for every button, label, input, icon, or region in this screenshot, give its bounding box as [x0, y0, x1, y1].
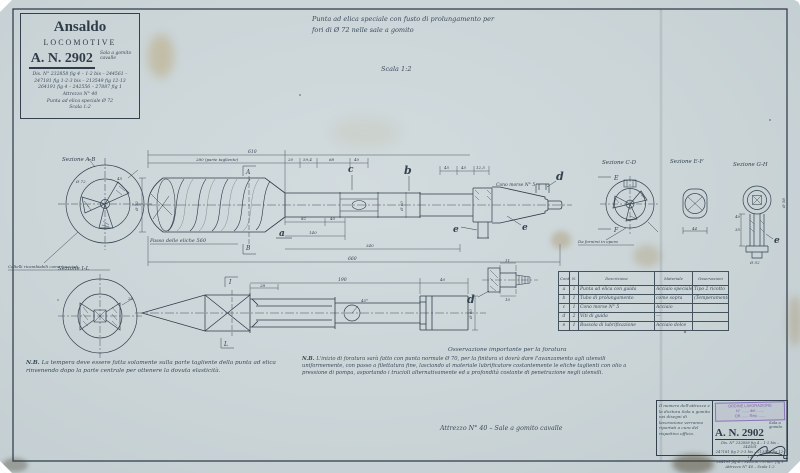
part-a-label: a	[279, 229, 285, 239]
dim-610: 610	[248, 149, 257, 155]
sheet-title-line2: fori di Ø 72 nelle sale a gomito	[312, 25, 582, 36]
guide-screw-detail	[478, 263, 538, 297]
dim-40a: 40	[353, 157, 360, 162]
section-cd-view	[600, 176, 660, 240]
section-il-label: Sezione I-L	[58, 266, 90, 272]
extension-rod	[135, 277, 486, 348]
table-row: b1 Tubo di prolungamentocome sopra(Tempe…	[559, 295, 729, 304]
section-ab-label: Sezione A-B	[62, 157, 95, 163]
blueprint-sheet: Sezione A-B 45 Ø 72	[0, 0, 800, 473]
part-e-label-2: e	[522, 223, 528, 233]
marker-a-cap: A	[245, 169, 251, 176]
part-e-label-1: e	[453, 225, 459, 235]
dim-660: 660	[348, 256, 357, 262]
title-block-refs: Dis. N° 232858 fig 4 – 1-2 bis – 244561 …	[715, 441, 785, 470]
dim-ef-44: 44	[691, 226, 698, 231]
drilling-note: N.B.L'inizio di foratura sarà fatto con …	[302, 356, 628, 376]
dim-screw-11: 11	[505, 258, 510, 263]
title-block-note: Il numero dell'attrezzo e la dicitura Sa…	[657, 401, 713, 455]
dim-rod-40: 40	[439, 277, 446, 282]
supply-note: Da fornirsi in opera	[577, 239, 618, 244]
table-row: e1 Bussola di lubrificazioneAcciaio dolc…	[559, 322, 729, 331]
dim-82: 82	[301, 216, 307, 221]
dim-40b: 40	[329, 216, 336, 221]
col-qty: N.	[570, 272, 579, 286]
section-cd-label: Sezione C-D	[602, 160, 637, 166]
tempering-note: N.B.La tempera deve essere fatta solamen…	[26, 360, 292, 375]
title-box-top-left: Ansaldo LOCOMOTIVE A. N. 2902 Sala a gom…	[20, 13, 140, 119]
dim-screw-10: 10	[505, 297, 511, 302]
part-d-label-2: d	[467, 293, 475, 306]
section-gh-view	[739, 186, 773, 258]
dim-dia60: Ø 60	[399, 201, 404, 212]
dim-594: 59,4	[303, 157, 312, 162]
work-order-stamp: ORDINE LAVORAZIONE N° ....... del ......…	[715, 401, 785, 421]
section-gh-label: Sezione G-H	[733, 162, 768, 168]
drawing-number-annotation: Sala a gomito cavalle	[100, 52, 131, 62]
marker-e-cap: E	[613, 175, 619, 182]
paper-corner	[788, 461, 800, 473]
dim-rod-28: 28	[259, 283, 266, 288]
dim-rod-45deg: 45°	[360, 298, 368, 303]
dim-68: 68	[329, 157, 335, 162]
tool-reference-line: Attrezzo N° 40 – Sale a gomito cavalle	[440, 425, 563, 432]
section-il-view	[58, 274, 142, 358]
dim-20: 20	[287, 157, 294, 162]
dim-gh-52: Ø 52	[749, 260, 760, 265]
dim-ab-dia: Ø 72	[75, 179, 86, 184]
dim-gh-40: 40	[734, 214, 741, 219]
dim-340: 340	[366, 243, 374, 248]
reference-notes: Dis. N° 232858 fig 4 – 1-2 bis – 244561 …	[21, 72, 139, 112]
drill-assembly	[132, 175, 611, 246]
dim-280: 280 (parte tagliente)	[195, 157, 239, 162]
dim-rod-28b: 28	[127, 296, 134, 301]
title-block-annotation: Sala a gomito	[769, 421, 782, 429]
part-d-label: d	[556, 170, 564, 183]
brand-subtitle: LOCOMOTIVE	[21, 38, 139, 47]
dim-rod-dia60: Ø 60	[468, 309, 473, 320]
cone-note: Cono morse N° 5	[496, 182, 535, 188]
table-row: c1 Cono morse N° 5Acciaio	[559, 304, 729, 313]
dim-140: 140	[309, 230, 317, 235]
marker-l-cap: L	[223, 341, 228, 348]
brand-name: Ansaldo	[21, 19, 139, 36]
dim-gh-58: Ø 58	[781, 198, 786, 209]
dim-125: 12,5	[476, 165, 485, 170]
marker-b-cap: B	[245, 245, 251, 252]
section-ef-label: Sezione E-F	[670, 159, 704, 165]
drawing-number: A. N. 2902	[29, 51, 95, 69]
table-row: d2 Viti di guida—	[559, 313, 729, 322]
col-desc: Descrizione	[579, 272, 655, 286]
part-b-label: b	[404, 164, 412, 177]
title-block-main: ORDINE LAVORAZIONE N° ....... del ......…	[713, 401, 787, 455]
table-row: a1 Punta ad elica con guidaAcciaio speci…	[559, 286, 729, 295]
sheet-title: Punta ad elica speciale con fusto di pro…	[312, 14, 582, 36]
paper-corner	[0, 0, 12, 12]
dim-45b: 45	[460, 165, 467, 170]
dim-ab-45: 45	[116, 176, 123, 181]
dim-rod-190: 190	[338, 277, 347, 283]
scale-note: Scala 1:2	[381, 65, 411, 73]
col-mark: Contrassegno	[559, 272, 570, 286]
dim-45a: 45	[443, 165, 450, 170]
parts-table-header: Contrassegno N. Descrizione Materiale Os…	[559, 272, 729, 286]
dimension-lines-rod	[250, 278, 478, 330]
parts-table: Contrassegno N. Descrizione Materiale Os…	[558, 271, 729, 331]
dim-gh-35: 35	[735, 227, 741, 232]
marker-i-cap: I	[228, 279, 232, 286]
drilling-observation-heading: Osservazione importante per la foratura	[448, 347, 567, 353]
part-c-label: c	[348, 165, 354, 175]
title-block-number: A. N. 2902	[715, 428, 764, 440]
dim-dia72: Ø 72	[134, 201, 139, 212]
title-block: Il numero dell'attrezzo e la dicitura Sa…	[656, 400, 788, 456]
col-obs: Osservazioni	[693, 272, 729, 286]
part-e-label-3: e	[774, 236, 780, 246]
paper-corner	[0, 461, 12, 473]
fold-crease	[659, 9, 663, 461]
sheet-title-line1: Punta ad elica speciale con fusto di pro…	[312, 14, 582, 25]
pitch-note: Passo delle eliche 560	[149, 238, 207, 244]
